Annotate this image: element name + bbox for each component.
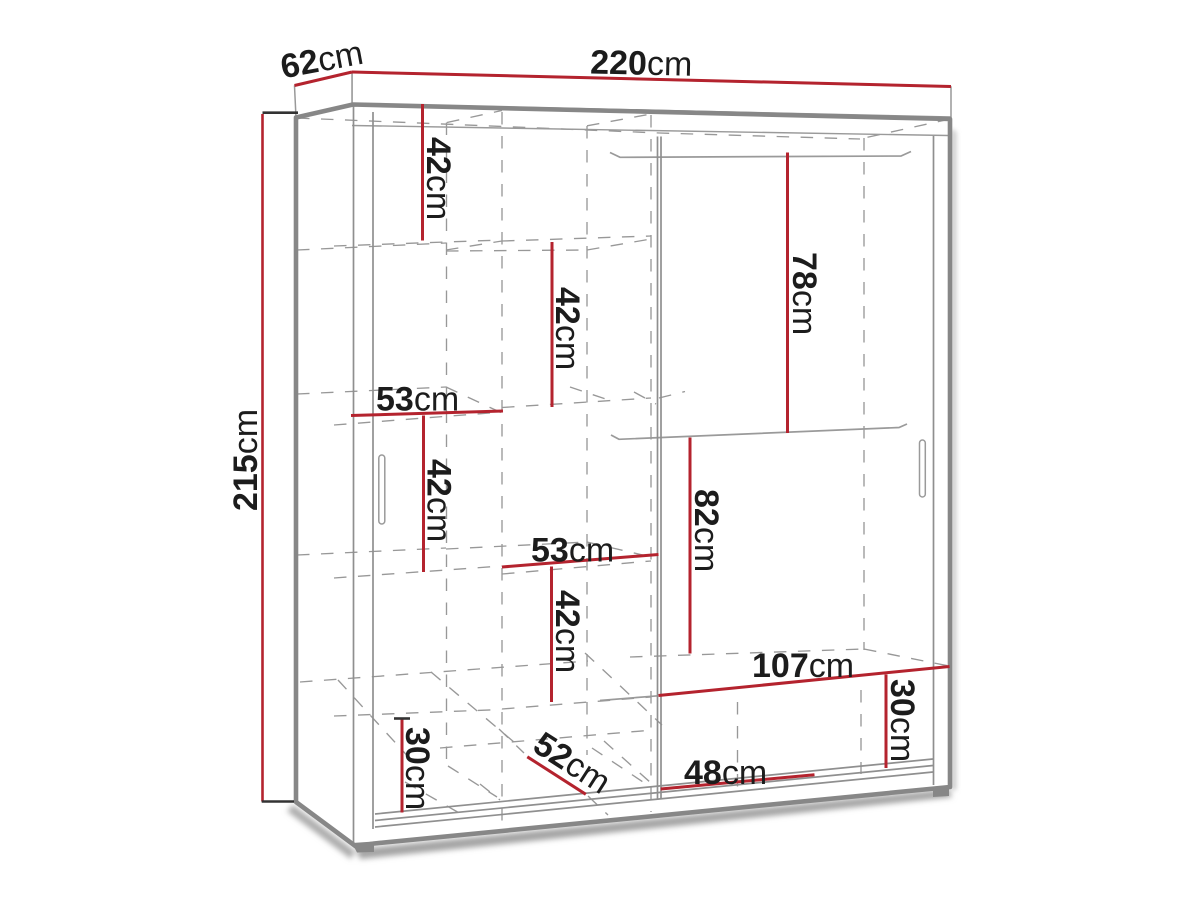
svg-text:30cm: 30cm <box>398 727 436 810</box>
svg-text:82cm: 82cm <box>687 489 725 572</box>
svg-text:107cm: 107cm <box>752 647 854 685</box>
svg-text:53cm: 53cm <box>376 381 459 419</box>
svg-text:78cm: 78cm <box>785 252 823 335</box>
svg-text:220cm: 220cm <box>590 44 693 84</box>
svg-text:42cm: 42cm <box>419 137 457 220</box>
svg-text:53cm: 53cm <box>531 532 614 570</box>
svg-text:42cm: 42cm <box>548 287 586 370</box>
svg-text:42cm: 42cm <box>548 590 586 673</box>
svg-text:42cm: 42cm <box>420 459 458 542</box>
svg-text:215cm: 215cm <box>227 409 265 511</box>
svg-text:30cm: 30cm <box>883 679 921 762</box>
svg-text:48cm: 48cm <box>684 754 767 792</box>
